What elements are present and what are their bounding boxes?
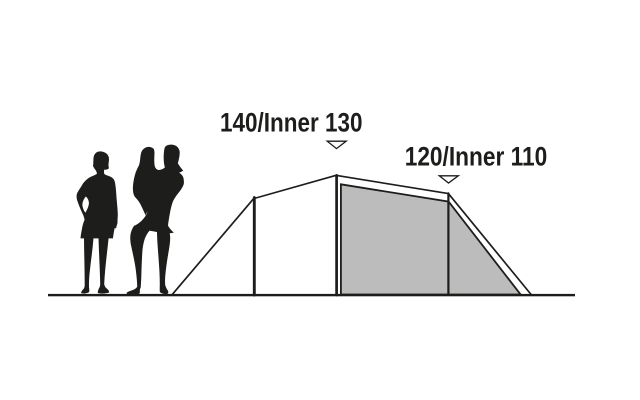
svg-text:120/Inner 110: 120/Inner 110 [405, 142, 548, 172]
svg-text:140/Inner 130: 140/Inner 130 [220, 108, 363, 138]
